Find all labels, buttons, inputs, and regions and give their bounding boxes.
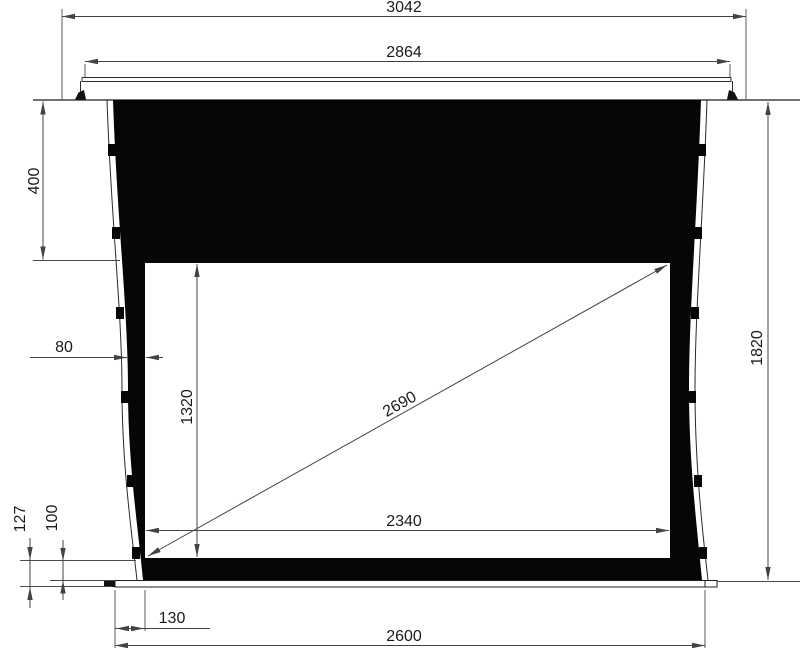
dim-label-case-width: 2864 bbox=[386, 44, 422, 61]
dim-label-viewing-width: 2340 bbox=[386, 513, 422, 530]
tension-tab bbox=[688, 391, 696, 403]
tension-tab bbox=[691, 307, 699, 319]
dim-bottom-total-height: 127 bbox=[12, 506, 136, 608]
dim-top-border-height: 400 bbox=[26, 102, 120, 261]
diagram-canvas: 3042 2864 400 80 1320 2690 2340 1820 bbox=[0, 0, 800, 650]
tension-tab bbox=[112, 227, 120, 239]
case-bracket-left bbox=[75, 81, 86, 100]
dim-overall-height: 1820 bbox=[717, 102, 800, 582]
dim-label-top-border-height: 400 bbox=[26, 168, 43, 195]
dim-label-bottom-bar-width: 2600 bbox=[386, 628, 422, 645]
screen-dimension-diagram: 3042 2864 400 80 1320 2690 2340 1820 bbox=[0, 0, 800, 650]
tension-tab bbox=[694, 227, 702, 239]
dim-bottom-bar-width: 2600 bbox=[115, 590, 705, 648]
tension-tab bbox=[116, 307, 124, 319]
tension-tab bbox=[108, 144, 116, 156]
tension-tab bbox=[127, 475, 135, 487]
tension-tab bbox=[121, 391, 129, 403]
bottom-bar bbox=[104, 581, 717, 588]
tension-tab bbox=[132, 547, 140, 559]
dim-label-overall-width: 3042 bbox=[386, 0, 422, 16]
screen-case bbox=[75, 78, 738, 100]
case-bracket-right bbox=[727, 81, 738, 100]
dim-label-bottom-total-height: 127 bbox=[12, 506, 29, 533]
dim-label-bar-side-offset: 130 bbox=[159, 610, 186, 627]
dim-bar-side-offset: 130 bbox=[115, 590, 210, 631]
bottom-bar-endcap-left bbox=[104, 581, 115, 588]
dim-label-bottom-border-height: 100 bbox=[44, 505, 61, 532]
dim-label-overall-height: 1820 bbox=[749, 330, 766, 366]
dim-label-side-border-width: 80 bbox=[55, 339, 73, 356]
dim-case-width: 2864 bbox=[85, 44, 730, 77]
bottom-bar-endcap-right bbox=[705, 581, 717, 588]
tension-tab bbox=[698, 144, 706, 156]
tension-tab bbox=[699, 547, 707, 559]
dim-label-viewing-height: 1320 bbox=[179, 389, 196, 425]
tension-tab bbox=[694, 475, 702, 487]
